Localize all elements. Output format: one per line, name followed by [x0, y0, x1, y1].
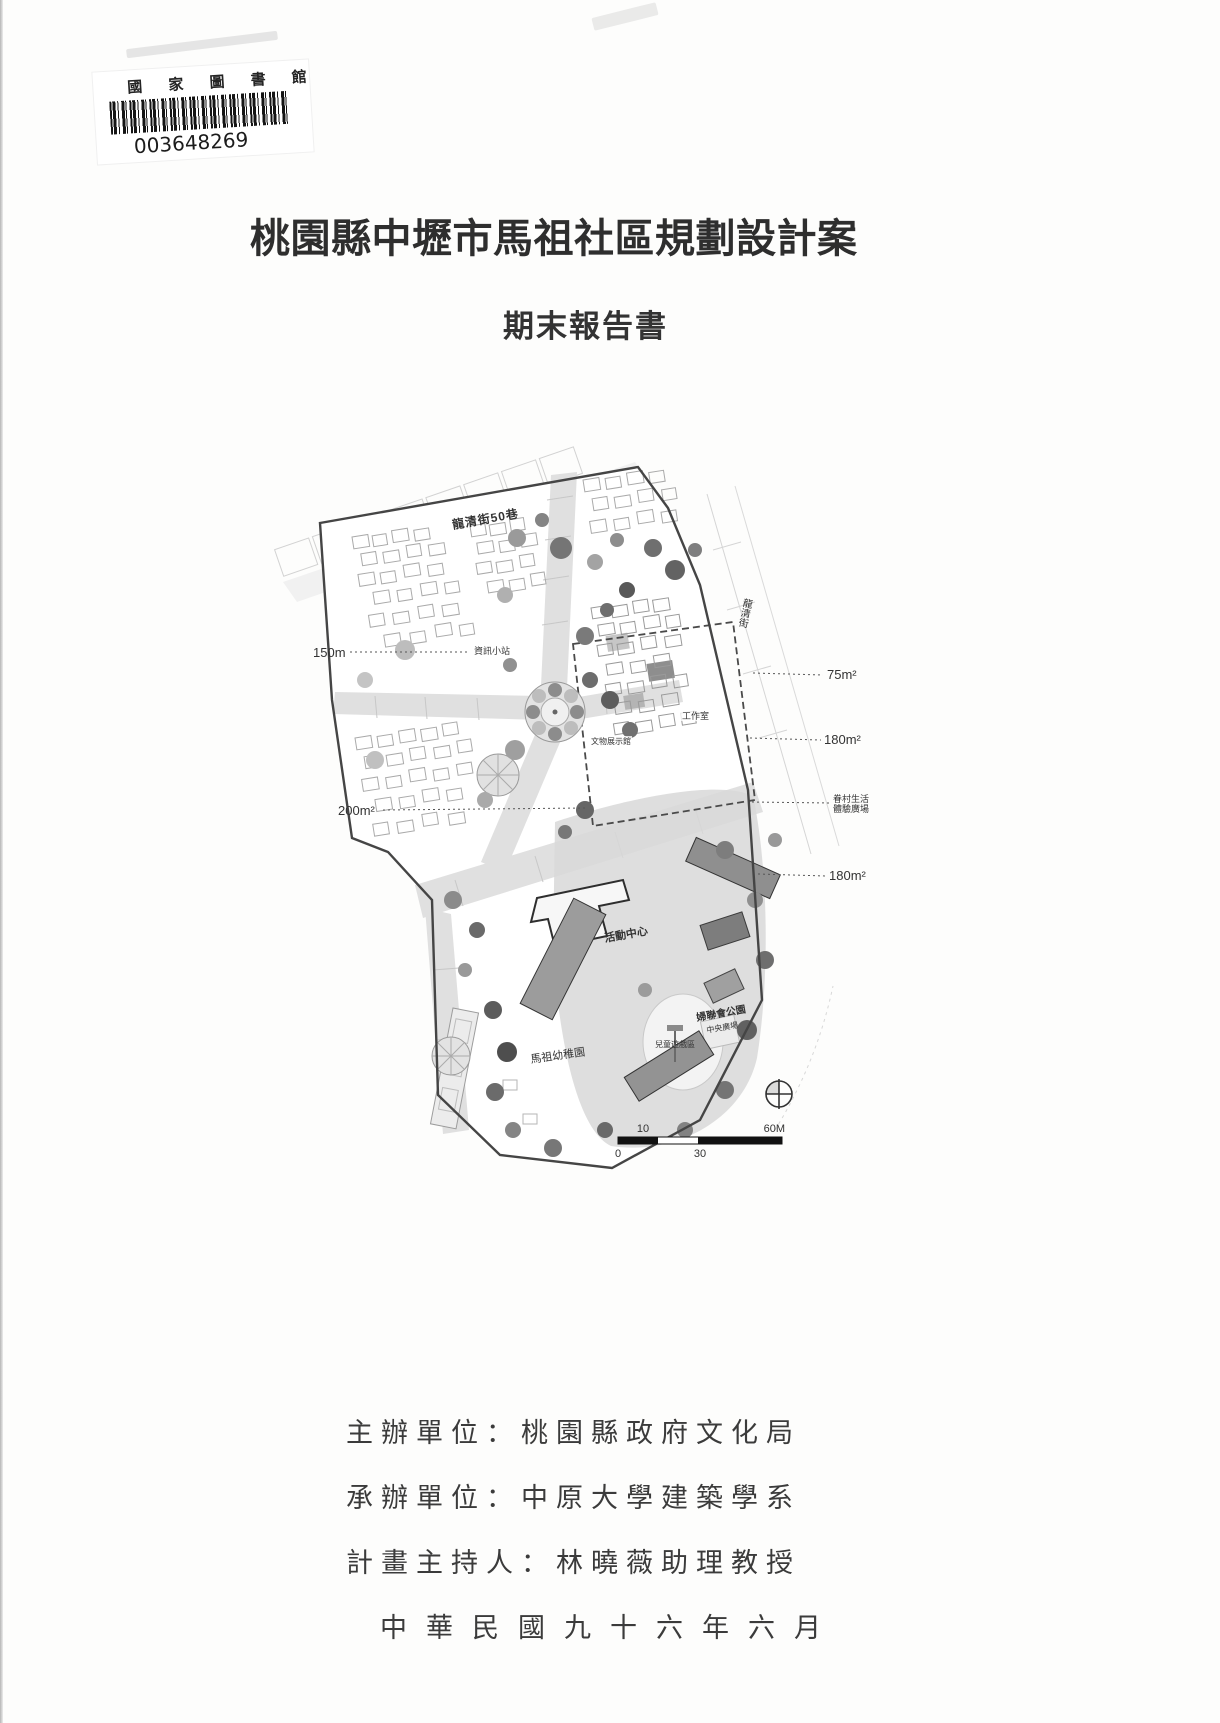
date-line: 中華民國九十六年六月 [346, 1615, 840, 1643]
annotation-75m2: 75m² [827, 667, 857, 682]
artifact-hall-label: 文物展示館 [591, 736, 631, 746]
credits-block: 主辦單位：桃園縣政府文化局 承辦單位：中原大學建築學系 計畫主持人：林曉薇助理教… [346, 1420, 840, 1680]
info-station-label: 資訊小站 [474, 645, 510, 656]
annotation-180m2-a: 180m² [824, 732, 862, 747]
page-subtitle: 期末報告書 [503, 311, 668, 342]
workshop-label: 工作室 [682, 710, 709, 721]
scan-streak [126, 31, 278, 58]
organizer-line: 主辦單位：桃園縣政府文化局 [346, 1420, 840, 1448]
principal-line: 計畫主持人：林曉薇助理教授 [346, 1550, 840, 1578]
children-play-label: 兒童遊戲區 [655, 1039, 695, 1049]
report-cover-page: 國 家 圖 書 館 003648269 桃園縣中壢市馬祖社區規劃設計案 期末報告… [0, 0, 1220, 1723]
scale-label-30: 30 [694, 1148, 706, 1160]
site-plan-map: 龍清街50巷 龍清街 資訊小站 工作室 文物展示館 活動中心 馬祖幼稚園 婦聯會… [255, 430, 885, 1170]
north-indicator-icon [766, 1079, 792, 1109]
annotation-150m: 150m [313, 645, 346, 660]
scan-edge-artifact [0, 0, 3, 1723]
annotation-180m2-b: 180m² [829, 868, 867, 883]
scale-label-60m: 60M [764, 1123, 785, 1135]
annotation-veteran-line1: 眷村生活 [833, 793, 869, 804]
annotation-veteran-line2: 體驗廣場 [833, 803, 869, 814]
contractor-line: 承辦單位：中原大學建築學系 [346, 1485, 840, 1513]
scan-streak [591, 2, 658, 31]
park-ground [553, 790, 766, 1148]
library-barcode-card: 國 家 圖 書 館 003648269 [92, 59, 313, 164]
scale-label-0: 0 [615, 1148, 621, 1160]
page-title: 桃園縣中壢市馬祖社區規劃設計案 [250, 219, 858, 259]
annotation-200m2: 200m² [338, 803, 376, 818]
scale-label-10: 10 [637, 1123, 649, 1135]
